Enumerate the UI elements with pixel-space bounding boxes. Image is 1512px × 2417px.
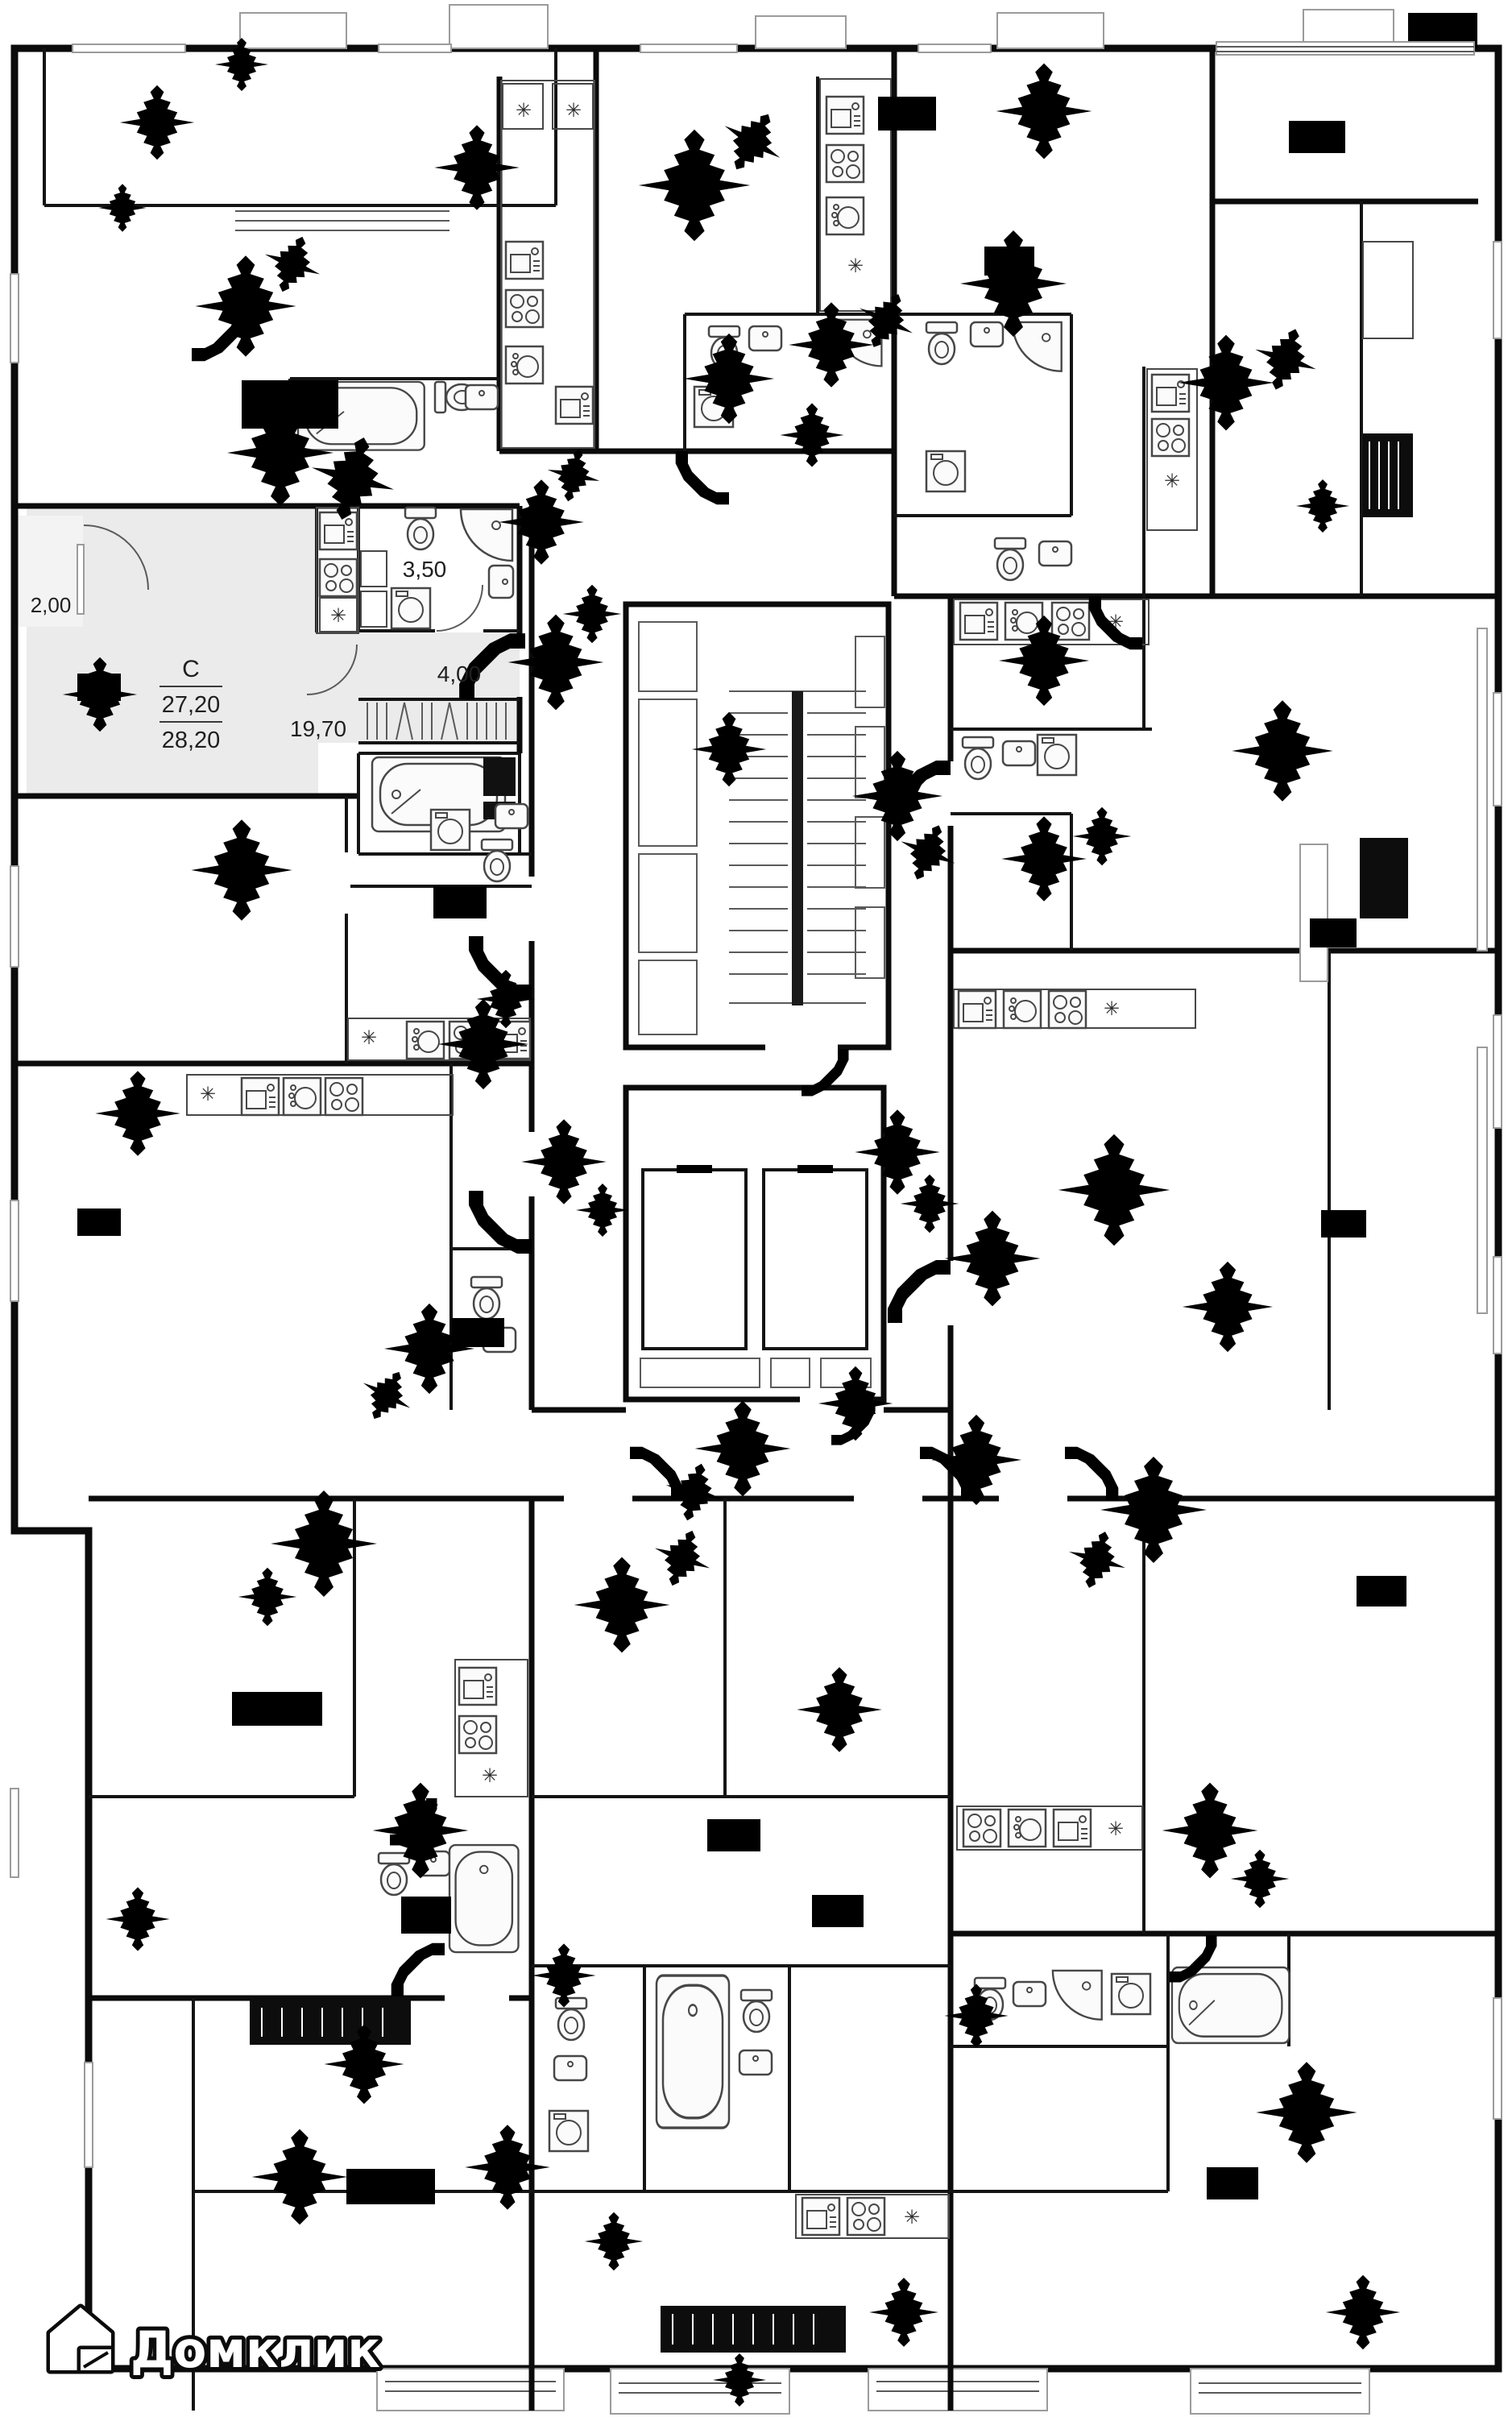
fridge-marker-icon: ✳ xyxy=(904,2207,920,2228)
domclick-logo-text: Домклик xyxy=(130,2320,380,2379)
fridge-marker-icon: ✳ xyxy=(361,1027,377,1049)
fridge-marker-icon: ✳ xyxy=(200,1084,216,1105)
bathroom-area-label: 3,50 xyxy=(403,557,447,582)
floorplan-svg: ✳ ✳ ✳ ✳ xyxy=(0,0,1512,2417)
total-area-label: 28,20 xyxy=(162,728,221,753)
fridge-marker-icon: ✳ xyxy=(1104,998,1120,1020)
balcony-area-label: 2,00 xyxy=(31,593,72,617)
unit-type-label: С xyxy=(182,656,200,682)
fridge-marker-icon: ✳ xyxy=(847,255,864,277)
hallway-area-label: 4,00 xyxy=(437,661,482,686)
fridge-marker-icon: ✳ xyxy=(1164,471,1180,492)
floorplan-page: ✳ ✳ ✳ ✳ xyxy=(0,0,1512,2417)
room-area-label: 19,70 xyxy=(290,716,346,741)
fridge-marker-icon: ✳ xyxy=(565,100,582,122)
living-area-label: 27,20 xyxy=(162,692,221,718)
fridge-marker-icon: ✳ xyxy=(516,100,532,122)
fridge-marker-icon: ✳ xyxy=(1108,1818,1124,1840)
fridge-marker-icon: ✳ xyxy=(482,1765,498,1787)
fridge-marker-icon: ✳ xyxy=(330,605,346,627)
